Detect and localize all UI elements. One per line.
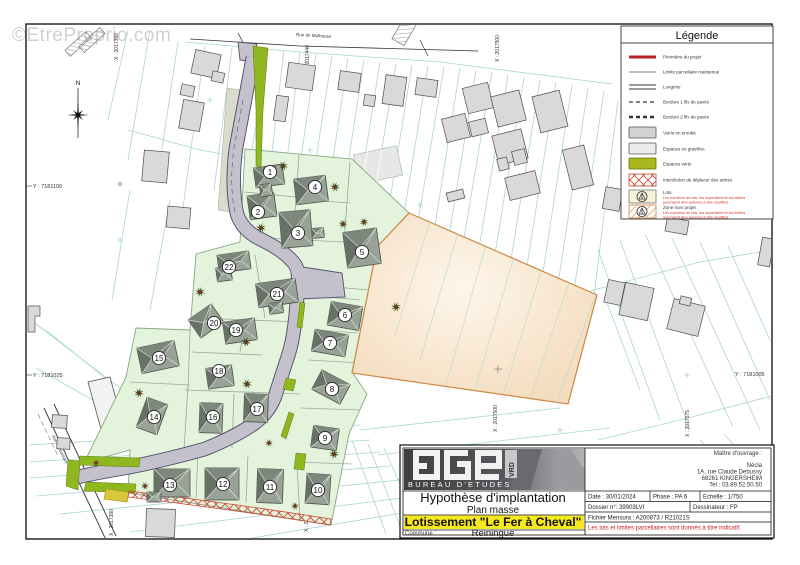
svg-text:14: 14 — [150, 413, 159, 422]
svg-text:pourraient être amenés à être: pourraient être amenés à être modifiés — [663, 216, 728, 220]
svg-text:22: 22 — [225, 263, 234, 272]
svg-text:9: 9 — [323, 434, 328, 443]
svg-text:1: 1 — [268, 168, 273, 177]
svg-text:Lotissement "Le Fer à Cheval": Lotissement "Le Fer à Cheval" — [405, 515, 582, 529]
svg-text:Tel : 03.89.52.50.50: Tel : 03.89.52.50.50 — [709, 483, 762, 489]
svg-text:Date : 30/01/2024: Date : 30/01/2024 — [588, 495, 636, 501]
svg-text:Dossier n°: 39903LVI: Dossier n°: 39903LVI — [588, 505, 645, 511]
svg-text:Nécla: Nécla — [747, 463, 763, 469]
svg-text:Limite parcellaire maintenue: Limite parcellaire maintenue — [663, 70, 720, 75]
svg-text:Bordure 2 fils de pavés: Bordure 2 fils de pavés — [663, 115, 710, 120]
svg-text:Hypothèse d'implantation: Hypothèse d'implantation — [420, 490, 566, 505]
svg-text:N: N — [76, 80, 81, 87]
svg-text:X : 2017500: X : 2017500 — [493, 405, 499, 432]
svg-text:21: 21 — [273, 290, 282, 299]
svg-text:Y : 7181005: Y : 7181005 — [735, 372, 765, 378]
svg-text:BUREAU D'ETUDES: BUREAU D'ETUDES — [408, 480, 512, 489]
svg-text:Echelle : 1/750: Echelle : 1/750 — [703, 495, 743, 501]
svg-text:5: 5 — [360, 248, 365, 257]
svg-text:X : 2017575: X : 2017575 — [685, 410, 691, 437]
svg-text:Longrine: Longrine — [663, 85, 681, 90]
svg-text:10: 10 — [314, 486, 323, 495]
svg-text:1A, rue Claude Debussy: 1A, rue Claude Debussy — [697, 470, 762, 476]
svg-text:68261 KINGERSHEIM: 68261 KINGERSHEIM — [702, 476, 762, 482]
svg-text:18: 18 — [215, 367, 224, 376]
svg-text:13: 13 — [166, 481, 175, 490]
svg-text:19: 19 — [232, 326, 241, 335]
svg-text:Légende: Légende — [676, 30, 719, 42]
svg-text:Les lots et limites parcellair: Les lots et limites parcellaires sont do… — [588, 526, 741, 532]
svg-text:6: 6 — [343, 311, 348, 320]
svg-text:Fichier Mensura : A200873 /: Fichier Mensura : A200873 / R21021S — [588, 516, 690, 522]
svg-text:Espaces en gravillon: Espaces en gravillon — [663, 147, 705, 152]
svg-text:Lots: Lots — [663, 190, 672, 195]
svg-text:2: 2 — [256, 208, 261, 217]
svg-text:Zone hors projet: Zone hors projet — [663, 205, 697, 210]
svg-text:Périmètre du projet: Périmètre du projet — [663, 55, 702, 60]
svg-text:Les numéros de lots, les super: Les numéros de lots, les superficies et … — [663, 211, 745, 215]
svg-text:7: 7 — [328, 339, 333, 348]
svg-text:X : 2017380: X : 2017380 — [114, 33, 120, 60]
svg-text:X : 2017500: X : 2017500 — [495, 35, 501, 62]
svg-text:Y : 7181025: Y : 7181025 — [33, 373, 63, 379]
svg-text:Voirie en enrobé: Voirie en enrobé — [663, 131, 696, 136]
svg-text:17: 17 — [253, 405, 262, 414]
svg-text:Espaces verts: Espaces verts — [663, 162, 692, 167]
svg-text:Bordure 1 fils de pavés: Bordure 1 fils de pavés — [663, 100, 710, 105]
svg-text:Maître d'ouvrage :: Maître d'ouvrage : — [714, 451, 763, 457]
svg-text:8: 8 — [330, 385, 335, 394]
svg-text:15: 15 — [155, 354, 164, 363]
svg-text:Commune :: Commune : — [405, 531, 436, 537]
svg-text:12: 12 — [219, 480, 228, 489]
svg-text:Phase : PA 6: Phase : PA 6 — [653, 495, 688, 501]
svg-text:pourraient être amenés à être: pourraient être amenés à être modifiés — [663, 201, 728, 205]
svg-text:Dessinateur : FP: Dessinateur : FP — [693, 505, 738, 511]
svg-text:4: 4 — [313, 183, 318, 192]
svg-text:Interdiction de déplacer des a: Interdiction de déplacer des arbres — [663, 178, 733, 183]
svg-text:Y : 7181100: Y : 7181100 — [33, 184, 62, 190]
svg-text:11: 11 — [266, 483, 275, 492]
svg-text:VRD: VRD — [509, 462, 516, 477]
svg-text:16: 16 — [209, 413, 218, 422]
svg-text:3: 3 — [296, 229, 301, 238]
svg-text:20: 20 — [210, 319, 219, 328]
svg-text:Les numéros de lots, les super: Les numéros de lots, les superficies et … — [663, 196, 745, 200]
